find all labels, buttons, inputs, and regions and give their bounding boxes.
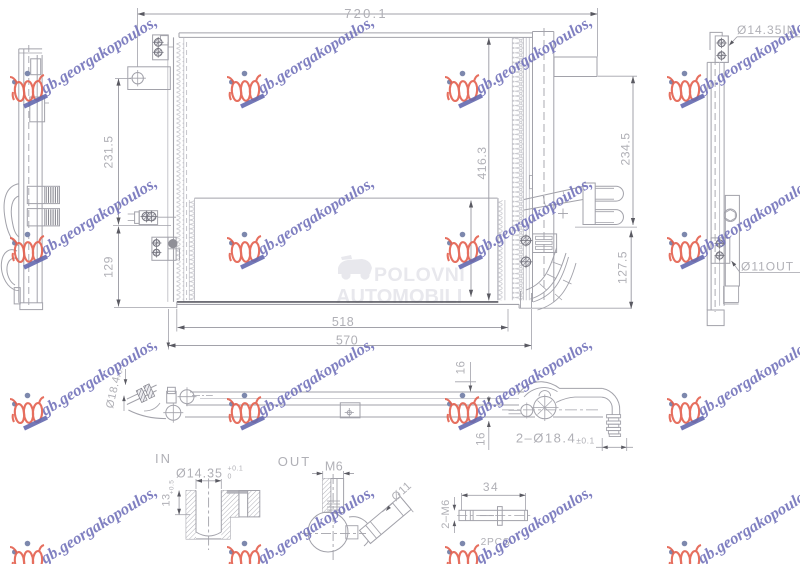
svg-text:POLOVNI: POLOVNI	[374, 264, 465, 286]
svg-text:34: 34	[483, 480, 499, 494]
svg-text:0: 0	[228, 474, 232, 481]
svg-text:Ø14.35: Ø14.35	[176, 467, 223, 481]
svg-text:+0.1: +0.1	[228, 466, 244, 473]
svg-text:OUT: OUT	[278, 454, 311, 469]
svg-text:IN: IN	[155, 451, 172, 466]
svg-text:2–M6: 2–M6	[440, 499, 452, 529]
svg-text:Ø11OUT: Ø11OUT	[741, 260, 794, 274]
svg-text:16: 16	[456, 361, 468, 375]
svg-text:M6: M6	[325, 460, 343, 474]
svg-text:2–Ø18.4: 2–Ø18.4	[516, 431, 576, 446]
svg-text:16: 16	[476, 432, 488, 446]
svg-text:518: 518	[332, 315, 354, 329]
svg-text:129: 129	[102, 256, 116, 278]
svg-text:+0.5: +0.5	[169, 480, 176, 495]
svg-text:±0.1: ±0.1	[576, 436, 594, 446]
svg-text:127.5: 127.5	[616, 251, 630, 284]
svg-text:416.3: 416.3	[475, 147, 489, 180]
svg-text:231.5: 231.5	[102, 136, 116, 169]
svg-text:234.5: 234.5	[619, 133, 633, 166]
